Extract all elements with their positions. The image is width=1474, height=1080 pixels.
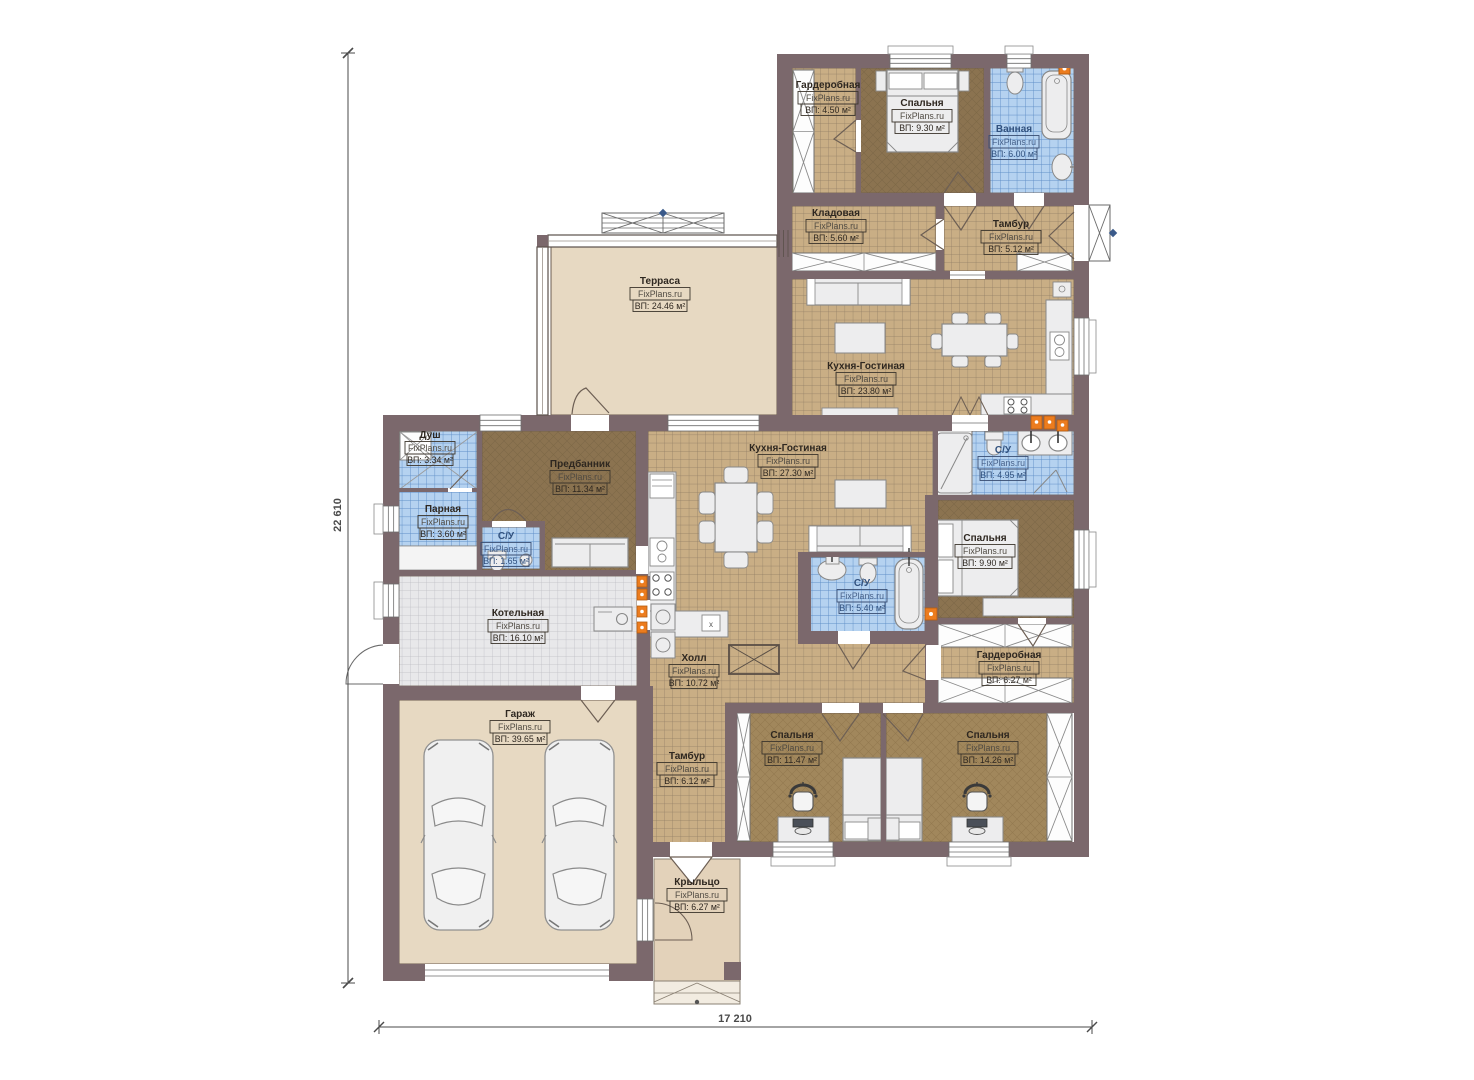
svg-text:Спальня: Спальня: [966, 730, 1009, 741]
svg-text:FixPlans.ru: FixPlans.ru: [484, 544, 528, 554]
svg-text:FixPlans.ru: FixPlans.ru: [558, 472, 602, 482]
svg-text:ВП: 27.30 м²: ВП: 27.30 м²: [763, 468, 814, 478]
svg-text:ВП: 5.12 м²: ВП: 5.12 м²: [988, 244, 1034, 254]
svg-text:Кладовая: Кладовая: [812, 208, 860, 219]
svg-text:ВП: 5.40 м²: ВП: 5.40 м²: [839, 603, 885, 613]
svg-text:С/У: С/У: [854, 578, 871, 589]
svg-text:Спальня: Спальня: [900, 98, 943, 109]
svg-text:Спальня: Спальня: [770, 730, 813, 741]
svg-text:Холл: Холл: [681, 653, 706, 664]
svg-text:Терраса: Терраса: [640, 276, 681, 287]
svg-text:ВП: 6.12 м²: ВП: 6.12 м²: [664, 776, 710, 786]
svg-text:ВП: 5.60 м²: ВП: 5.60 м²: [813, 233, 859, 243]
svg-text:FixPlans.ru: FixPlans.ru: [840, 591, 884, 601]
svg-text:FixPlans.ru: FixPlans.ru: [844, 374, 888, 384]
svg-text:FixPlans.ru: FixPlans.ru: [814, 221, 858, 231]
svg-text:FixPlans.ru: FixPlans.ru: [766, 456, 810, 466]
svg-text:FixPlans.ru: FixPlans.ru: [966, 743, 1010, 753]
svg-text:FixPlans.ru: FixPlans.ru: [992, 137, 1036, 147]
svg-text:Душ: Душ: [419, 430, 440, 441]
svg-text:ВП: 11.47 м²: ВП: 11.47 м²: [767, 755, 817, 765]
svg-text:FixPlans.ru: FixPlans.ru: [675, 890, 719, 900]
svg-text:ВП: 11.34 м²: ВП: 11.34 м²: [555, 484, 605, 494]
svg-text:ВП: 4.95 м²: ВП: 4.95 м²: [980, 470, 1026, 480]
svg-text:ВП: 9.30 м²: ВП: 9.30 м²: [899, 123, 945, 133]
svg-text:FixPlans.ru: FixPlans.ru: [806, 93, 850, 103]
svg-text:FixPlans.ru: FixPlans.ru: [900, 111, 944, 121]
svg-text:ВП: 9.90 м²: ВП: 9.90 м²: [962, 558, 1008, 568]
svg-text:22 610: 22 610: [332, 498, 344, 532]
svg-text:ВП: 14.26 м²: ВП: 14.26 м²: [963, 755, 1014, 765]
svg-text:С/У: С/У: [995, 445, 1012, 456]
svg-text:Кухня-Гостиная: Кухня-Гостиная: [827, 361, 905, 372]
svg-text:ВП: 24.46 м²: ВП: 24.46 м²: [635, 301, 686, 311]
svg-text:ВП: 6.27 м²: ВП: 6.27 м²: [986, 675, 1032, 685]
svg-text:Тамбур: Тамбур: [669, 750, 705, 762]
svg-text:Тамбур: Тамбур: [993, 218, 1029, 230]
svg-text:ВП: 16.10 м²: ВП: 16.10 м²: [493, 633, 544, 643]
svg-text:FixPlans.ru: FixPlans.ru: [672, 666, 716, 676]
svg-text:FixPlans.ru: FixPlans.ru: [981, 458, 1025, 468]
svg-text:FixPlans.ru: FixPlans.ru: [498, 722, 542, 732]
svg-text:FixPlans.ru: FixPlans.ru: [496, 621, 540, 631]
svg-text:Гараж: Гараж: [505, 709, 536, 720]
svg-text:FixPlans.ru: FixPlans.ru: [638, 289, 682, 299]
svg-text:ВП: 3.34 м²: ВП: 3.34 м²: [407, 455, 453, 465]
svg-text:ВП: 1.65 м²: ВП: 1.65 м²: [483, 556, 529, 566]
svg-text:FixPlans.ru: FixPlans.ru: [665, 764, 709, 774]
svg-text:ВП: 39.65 м²: ВП: 39.65 м²: [495, 734, 546, 744]
svg-text:x: x: [709, 620, 713, 629]
svg-text:FixPlans.ru: FixPlans.ru: [963, 546, 1007, 556]
svg-text:ВП: 10.72 м²: ВП: 10.72 м²: [669, 678, 720, 688]
svg-text:Парная: Парная: [425, 504, 461, 515]
svg-text:FixPlans.ru: FixPlans.ru: [421, 517, 465, 527]
svg-text:С/У: С/У: [498, 531, 515, 542]
svg-text:FixPlans.ru: FixPlans.ru: [989, 232, 1033, 242]
svg-text:Спальня: Спальня: [963, 533, 1006, 544]
svg-text:Ванная: Ванная: [996, 124, 1032, 135]
svg-text:ВП: 6.00 м²: ВП: 6.00 м²: [991, 149, 1037, 159]
svg-text:Предбанник: Предбанник: [550, 458, 611, 470]
svg-text:Крыльцо: Крыльцо: [674, 877, 720, 888]
svg-text:FixPlans.ru: FixPlans.ru: [987, 663, 1031, 673]
svg-text:ВП: 23.80 м²: ВП: 23.80 м²: [841, 386, 892, 396]
svg-text:17 210: 17 210: [718, 1013, 752, 1025]
svg-text:ВП: 3.60 м²: ВП: 3.60 м²: [420, 529, 466, 539]
svg-text:Гардеробная: Гардеробная: [977, 649, 1042, 661]
svg-text:Котельная: Котельная: [492, 608, 545, 619]
svg-text:Кухня-Гостиная: Кухня-Гостиная: [749, 443, 827, 454]
svg-text:Гардеробная: Гардеробная: [796, 79, 861, 91]
svg-text:FixPlans.ru: FixPlans.ru: [408, 443, 452, 453]
svg-text:ВП: 6.27 м²: ВП: 6.27 м²: [674, 902, 720, 912]
svg-text:FixPlans.ru: FixPlans.ru: [770, 743, 814, 753]
svg-text:ВП: 4.50 м²: ВП: 4.50 м²: [805, 105, 851, 115]
